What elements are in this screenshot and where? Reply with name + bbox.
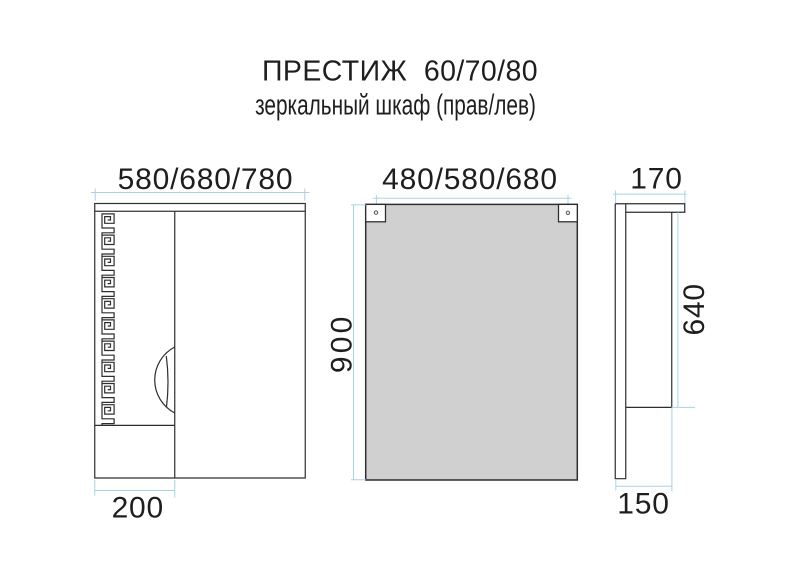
svg-text:200: 200 [112,492,164,525]
svg-text:150: 150 [617,487,669,520]
svg-text:580/680/780: 580/680/780 [118,163,294,196]
svg-text:480/580/680: 480/580/680 [382,163,558,196]
svg-text:640: 640 [678,283,711,335]
svg-text:зеркальный шкаф (прав/лев): зеркальный шкаф (прав/лев) [255,89,536,121]
svg-text:170: 170 [630,162,682,195]
svg-text:900: 900 [325,313,358,373]
svg-text:ПРЕСТИЖ 60/70/80: ПРЕСТИЖ 60/70/80 [262,56,538,88]
